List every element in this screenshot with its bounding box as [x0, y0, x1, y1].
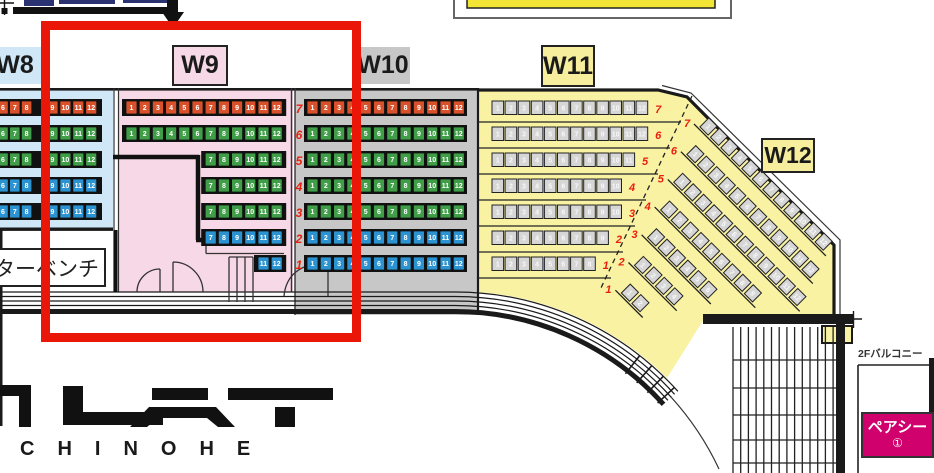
seat-number: 9: [601, 131, 605, 138]
seat-number: 1: [311, 105, 315, 112]
section-label-w11: W11: [541, 45, 595, 87]
seat-number: 4: [169, 105, 173, 112]
seat-number: 6: [377, 131, 381, 138]
seat-number: 4: [535, 183, 539, 190]
arena-seating-map: 5678910111256789101112567891011125678910…: [0, 0, 934, 473]
seat-number: 11: [260, 183, 268, 190]
seat-number: 8: [222, 157, 226, 164]
seat-number: 3: [522, 183, 526, 190]
seat-number: 6: [196, 131, 200, 138]
seat-number: 3: [337, 131, 341, 138]
logo-letter-t-top: [228, 388, 333, 400]
seat-number: 8: [25, 131, 29, 138]
seat-number: 3: [522, 209, 526, 216]
sections-top-border: [0, 88, 478, 91]
seat-number: 11: [260, 261, 268, 268]
seat-number: 2: [324, 209, 328, 216]
row-number-w12-4: 4: [644, 201, 651, 213]
seat-number: 11: [442, 209, 450, 216]
seat-number: 6: [1, 131, 5, 138]
seat-number: 2: [509, 261, 513, 268]
seat-number: 11: [260, 105, 268, 112]
rink-edge-arc: [671, 397, 719, 469]
seat-number: 8: [588, 183, 592, 190]
seat-number: 1: [311, 131, 315, 138]
seat-number: 9: [235, 157, 239, 164]
seat-number: 5: [364, 105, 368, 112]
seat-number: 7: [574, 131, 578, 138]
seat-number: 5: [548, 261, 552, 268]
seat-number: 1: [311, 235, 315, 242]
seat-number: 11: [625, 157, 633, 164]
seat-number: 1: [496, 183, 500, 190]
seat-number: 9: [51, 157, 55, 164]
seat-number: 7: [574, 209, 578, 216]
seat-number: 5: [364, 157, 368, 164]
seat-number: 11: [442, 235, 450, 242]
seat-number: 1: [311, 183, 315, 190]
seat-number: 5: [548, 183, 552, 190]
row-number-w11-7: 7: [655, 104, 662, 116]
seat-number: 12: [87, 105, 95, 112]
seat-number: 6: [561, 105, 565, 112]
seat-number: 12: [273, 235, 281, 242]
seat-number: 7: [209, 157, 213, 164]
seat-number: 6: [377, 157, 381, 164]
row-number-w11-4: 4: [628, 182, 635, 194]
seat-number: 7: [390, 261, 394, 268]
seat-number: 2: [509, 209, 513, 216]
seat-number: 2: [324, 157, 328, 164]
navy-block-3: [123, 0, 168, 3]
seat-number: 6: [377, 105, 381, 112]
row-number-w11-5: 5: [642, 156, 649, 168]
seat-number: 9: [601, 235, 605, 242]
seat-number: 11: [442, 105, 450, 112]
seat-number: 9: [601, 183, 605, 190]
seat-number: 2: [324, 235, 328, 242]
seat-number: 7: [574, 261, 578, 268]
seat-number: 6: [1, 209, 5, 216]
seat-number: 9: [51, 105, 55, 112]
seat-number: 3: [337, 157, 341, 164]
seat-number: 2: [324, 105, 328, 112]
seat-number: 10: [612, 209, 620, 216]
seat-number: 3: [522, 131, 526, 138]
seat-number: 9: [417, 209, 421, 216]
row-number-w12-7: 7: [684, 118, 691, 130]
seat-number: 6: [561, 157, 565, 164]
seat-number: 6: [377, 209, 381, 216]
seat-number: 12: [455, 131, 463, 138]
seat-number: 12: [273, 209, 281, 216]
seat-number: 10: [246, 105, 254, 112]
seat-number: 5: [182, 131, 186, 138]
row-number-w11-6: 6: [655, 130, 662, 142]
seat-number: 10: [62, 209, 70, 216]
seat-number: 6: [561, 235, 565, 242]
seat-number: 8: [222, 209, 226, 216]
logo-letter-t-stem: [275, 407, 295, 427]
seat-number: 6: [196, 105, 200, 112]
seat-number: 9: [601, 105, 605, 112]
seat-number: 3: [337, 209, 341, 216]
seat-number: 5: [364, 235, 368, 242]
seat-number: 4: [535, 131, 539, 138]
seat-number: 3: [156, 105, 160, 112]
seat-number: 11: [260, 209, 268, 216]
seat-number: 3: [156, 131, 160, 138]
seat-number: 8: [588, 235, 592, 242]
seat-number: 2: [509, 105, 513, 112]
seat-number: 11: [260, 131, 268, 138]
seat-number: 12: [455, 261, 463, 268]
seat-number: 7: [13, 209, 17, 216]
seat-number: 1: [496, 209, 500, 216]
seat-number: 11: [625, 105, 633, 112]
logo-letter-a-base: [130, 407, 235, 427]
seat-number: 8: [404, 105, 408, 112]
seat-number: 8: [222, 183, 226, 190]
seat-number: 9: [235, 105, 239, 112]
seat-number: 1: [496, 157, 500, 164]
seat-number: 5: [548, 235, 552, 242]
seat-number: 6: [1, 183, 5, 190]
seat-number: 12: [273, 105, 281, 112]
seat-number: 7: [574, 235, 578, 242]
w9-w10-divider: [292, 88, 296, 315]
seat-number: 8: [588, 157, 592, 164]
seat-number: 7: [390, 183, 394, 190]
seat-number: 8: [25, 157, 29, 164]
seat-number: 7: [209, 183, 213, 190]
row-number-w12-3: 3: [632, 229, 638, 241]
navy-block-1: [24, 0, 54, 6]
seat-number: 11: [625, 131, 633, 138]
seat-number: 12: [87, 209, 95, 216]
row-number-w12-1: 1: [605, 284, 611, 296]
seat-number: 11: [442, 261, 450, 268]
seat-number: 7: [390, 105, 394, 112]
seat-number: 11: [75, 183, 83, 190]
seat-number: 12: [273, 157, 281, 164]
seat-number: 9: [51, 131, 55, 138]
seat-number: 8: [588, 131, 592, 138]
seat-number: 7: [13, 157, 17, 164]
seat-number: 11: [260, 235, 268, 242]
seat-number: 10: [428, 183, 436, 190]
seat-number: 9: [235, 131, 239, 138]
seat-number: 7: [13, 183, 17, 190]
seat-number: 5: [548, 209, 552, 216]
seat-number: 4: [350, 183, 354, 190]
seat-number: 11: [75, 105, 83, 112]
seat-number: 8: [588, 261, 592, 268]
seat-number: 1: [130, 131, 134, 138]
seat-number: 12: [455, 183, 463, 190]
seat-number: 12: [273, 131, 281, 138]
seat-number: 12: [273, 261, 281, 268]
seat-number: 3: [522, 261, 526, 268]
seat-number: 5: [182, 105, 186, 112]
seat-number: 11: [442, 157, 450, 164]
seat-number: 3: [337, 235, 341, 242]
seat-number: 7: [390, 131, 394, 138]
seat-number: 1: [496, 235, 500, 242]
seat-number: 8: [25, 209, 29, 216]
seat-number: 5: [364, 131, 368, 138]
seat-number: 1: [130, 105, 134, 112]
seat-number: 11: [75, 157, 83, 164]
logo-letter-partial-stem: [19, 385, 31, 427]
seat-number: 2: [509, 157, 513, 164]
row-number-w12-5: 5: [658, 173, 665, 185]
seat-number: 8: [404, 131, 408, 138]
seat-number: 3: [522, 235, 526, 242]
seat-number: 7: [574, 183, 578, 190]
seat-number: 2: [143, 105, 147, 112]
seat-number: 4: [350, 235, 354, 242]
section-label-w8: W8: [0, 47, 42, 84]
seat-number: 1: [311, 157, 315, 164]
floorplan-svg: 5678910111256789101112567891011125678910…: [0, 0, 934, 473]
seat-number: 8: [25, 183, 29, 190]
seat-number: 10: [246, 235, 254, 242]
seat-number: 1: [496, 131, 500, 138]
seat-number: 7: [390, 157, 394, 164]
top-structure-bar: [13, 7, 178, 14]
seat-number: 7: [209, 105, 213, 112]
seat-number: 7: [209, 209, 213, 216]
seat-number: 3: [337, 261, 341, 268]
row-number-w11-3: 3: [629, 208, 635, 220]
stair-grid-right-wall: [836, 316, 845, 473]
seat-number: 1: [311, 209, 315, 216]
balcony-right-wall: [929, 358, 934, 414]
seat-number: 8: [222, 105, 226, 112]
seat-number: 12: [638, 131, 646, 138]
seat-number: 5: [364, 209, 368, 216]
seat-number: 12: [87, 157, 95, 164]
seat-number: 7: [13, 105, 17, 112]
row-number-w10-1: 1: [296, 258, 303, 272]
row-number-w10-2: 2: [295, 232, 303, 246]
seat-number: 9: [417, 235, 421, 242]
pair-seat-label: ペアシー: [863, 420, 932, 437]
seat-number: 4: [535, 235, 539, 242]
seat-number: 12: [455, 105, 463, 112]
section-w10-area: [295, 88, 478, 315]
seat-number: 12: [455, 235, 463, 242]
seat-number: 5: [548, 131, 552, 138]
seat-number: 4: [535, 105, 539, 112]
seat-number: 12: [87, 183, 95, 190]
seat-number: 9: [417, 157, 421, 164]
seat-number: 5: [364, 261, 368, 268]
logo-letter-partial: [0, 385, 19, 396]
seat-number: 4: [169, 131, 173, 138]
seat-number: 3: [337, 105, 341, 112]
seat-number: 6: [561, 209, 565, 216]
row-number-w10-3: 3: [296, 206, 303, 220]
seat-number: 3: [522, 157, 526, 164]
seat-number: 10: [612, 183, 620, 190]
seat-number: 7: [574, 105, 578, 112]
pair-seat-box[interactable]: ペアシー ①: [861, 412, 934, 458]
seat-number: 6: [561, 183, 565, 190]
seat-number: 10: [428, 235, 436, 242]
logo-letter-l-stem: [63, 386, 83, 425]
seat-number: 10: [62, 131, 70, 138]
seat-number: 10: [428, 209, 436, 216]
seat-number: 9: [417, 183, 421, 190]
seat-number: 12: [455, 157, 463, 164]
seat-number: 10: [428, 105, 436, 112]
center-bench-label: ターベンチ: [0, 253, 99, 283]
seat-number: 12: [273, 183, 281, 190]
seat-number: 3: [522, 105, 526, 112]
top-left-dot: [2, 8, 8, 14]
seat-number: 1: [496, 261, 500, 268]
seat-number: 4: [350, 131, 354, 138]
seat-number: 4: [535, 157, 539, 164]
row-number-w12-6: 6: [671, 146, 678, 158]
seat-number: 10: [246, 209, 254, 216]
seat-number: 8: [404, 261, 408, 268]
seat-number: 11: [442, 131, 450, 138]
seat-number: 8: [404, 235, 408, 242]
seat-number: 5: [364, 183, 368, 190]
section-label-w12: W12: [761, 138, 815, 173]
seat-number: 2: [509, 235, 513, 242]
seat-number: 10: [428, 157, 436, 164]
row-number-w11-1: 1: [603, 260, 609, 272]
seat-number: 10: [612, 105, 620, 112]
seat-number: 2: [143, 131, 147, 138]
seat-number: 8: [222, 235, 226, 242]
seat-number: 2: [324, 183, 328, 190]
logo-hachinohe-text: CHINOHE: [20, 438, 273, 461]
row-number-w11-2: 2: [615, 234, 622, 246]
seat-number: 10: [246, 131, 254, 138]
seat-number: 1: [311, 261, 315, 268]
seat-number: 4: [350, 157, 354, 164]
seat-number: 7: [209, 131, 213, 138]
seat-number: 9: [417, 131, 421, 138]
seat-number: 8: [404, 209, 408, 216]
row-number-w10-6: 6: [296, 128, 303, 142]
seat-number: 7: [390, 235, 394, 242]
section-label-w10: W10: [356, 47, 410, 84]
seat-number: 5: [548, 157, 552, 164]
seat-number: 12: [87, 131, 95, 138]
seat-number: 6: [561, 131, 565, 138]
seat-number: 10: [62, 157, 70, 164]
w12-bottom-bar: [703, 314, 853, 324]
seat-number: 10: [612, 157, 620, 164]
seat-number: 2: [509, 131, 513, 138]
w8-bottom-border: [0, 228, 113, 231]
seat-number: 7: [574, 157, 578, 164]
seat-number: 8: [404, 183, 408, 190]
seat-number: 9: [235, 183, 239, 190]
seat-number: 12: [455, 209, 463, 216]
walkway-step-hatch: [637, 366, 652, 383]
seat-number: 1: [496, 105, 500, 112]
seat-number: 11: [75, 131, 83, 138]
seat-number: 10: [246, 157, 254, 164]
balcony-label: 2Fバルコニー: [858, 346, 934, 361]
seat-number: 12: [638, 105, 646, 112]
seat-number: 6: [377, 183, 381, 190]
seat-number: 9: [51, 209, 55, 216]
seat-number: 9: [235, 209, 239, 216]
seat-number: 7: [13, 131, 17, 138]
seat-number: 10: [62, 183, 70, 190]
seat-number: 9: [601, 157, 605, 164]
seat-number: 3: [337, 183, 341, 190]
walkway-step-hatch: [658, 387, 675, 403]
seat-number: 9: [51, 183, 55, 190]
seat-number: 2: [324, 261, 328, 268]
seat-number: 10: [612, 131, 620, 138]
walkway-step-hatch: [647, 376, 663, 393]
seat-number: 4: [535, 261, 539, 268]
seat-number: 8: [25, 105, 29, 112]
seat-number: 6: [377, 235, 381, 242]
row-number-w12-2: 2: [617, 257, 624, 269]
seat-number: 8: [588, 105, 592, 112]
seat-number: 11: [442, 183, 450, 190]
seat-number: 2: [324, 131, 328, 138]
stair-grid: [733, 327, 838, 473]
seat-number: 9: [601, 209, 605, 216]
seat-number: 10: [428, 261, 436, 268]
seat-number: 10: [428, 131, 436, 138]
seat-number: 9: [235, 235, 239, 242]
navy-block-2: [59, 0, 115, 4]
seat-number: 5: [548, 105, 552, 112]
seat-number: 6: [377, 261, 381, 268]
seat-number: 6: [1, 157, 5, 164]
seat-number: 2: [509, 183, 513, 190]
seat-number: 8: [404, 157, 408, 164]
seat-number: 4: [350, 261, 354, 268]
scoreboard-yellow-bar: [467, 0, 715, 8]
seat-number: 10: [62, 105, 70, 112]
seat-number: 7: [209, 235, 213, 242]
section-label-w9: W9: [172, 45, 228, 86]
seat-number: 10: [246, 183, 254, 190]
seat-number: 7: [390, 209, 394, 216]
seat-number: 8: [588, 209, 592, 216]
seat-number: 9: [417, 105, 421, 112]
seat-number: 4: [350, 105, 354, 112]
center-bench-box: ターベンチ: [0, 248, 106, 287]
seat-number: 11: [75, 209, 83, 216]
seat-number: 6: [1, 105, 5, 112]
pair-seat-number: ①: [863, 437, 932, 450]
seat-number: 9: [417, 261, 421, 268]
seat-number: 11: [260, 157, 268, 164]
seat-number: 8: [222, 131, 226, 138]
seat-number: 4: [350, 209, 354, 216]
seat-number: 6: [561, 261, 565, 268]
logo-letter-a-top: [152, 388, 208, 400]
walkway-line: [0, 306, 668, 401]
seat-number: 4: [535, 209, 539, 216]
row-number-w10-4: 4: [295, 180, 303, 194]
